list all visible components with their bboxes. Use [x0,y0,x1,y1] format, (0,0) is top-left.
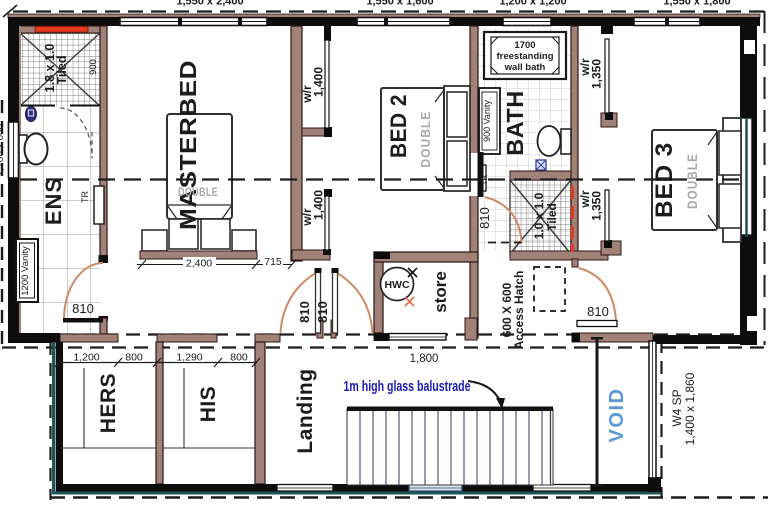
svg-text:DOUBLE: DOUBLE [685,153,700,209]
svg-text:BATH: BATH [502,90,528,156]
svg-text:ENS: ENS [41,177,66,225]
svg-text:900: 900 [88,59,99,75]
svg-text:900 Vanity: 900 Vanity [482,100,492,142]
svg-text:1,550 x 1,800: 1,550 x 1,800 [663,0,730,8]
svg-text:810: 810 [297,301,312,323]
svg-text:810: 810 [587,304,609,319]
svg-text:HWC: HWC [384,279,409,291]
svg-text:1,350: 1,350 [590,191,604,221]
svg-text:1,800: 1,800 [410,353,439,365]
svg-text:BED 2: BED 2 [386,94,411,158]
svg-text:TR: TR [80,191,90,203]
svg-text:W4 SP: W4 SP [670,389,684,426]
svg-text:1,400: 1,400 [312,67,326,97]
svg-text:1,290: 1,290 [176,352,202,364]
svg-text:715: 715 [264,256,282,268]
svg-text:MASTERBED: MASTERBED [175,60,201,230]
svg-text:1,550 x 1,600: 1,550 x 1,600 [366,0,433,8]
svg-text:800: 800 [230,352,248,364]
svg-text:1,200: 1,200 [73,352,99,364]
svg-text:1700: 1700 [514,40,535,51]
svg-text:1,400: 1,400 [312,190,326,220]
svg-text:1,200 x 1,200: 1,200 x 1,200 [499,0,566,8]
svg-text:1.0 x 1.0: 1.0 x 1.0 [532,192,546,239]
svg-text:HERS: HERS [97,373,120,433]
svg-text:wall bath: wall bath [504,62,546,73]
svg-text:1200 Vanity: 1200 Vanity [20,246,31,296]
svg-text:1m high glass balustrade: 1m high glass balustrade [344,379,471,395]
svg-text:HIS: HIS [197,386,220,423]
svg-text:BED 3: BED 3 [651,142,678,218]
svg-text:800: 800 [125,352,143,364]
svg-text:1,550 x 2,400: 1,550 x 2,400 [176,0,243,8]
svg-text:2,400: 2,400 [186,258,212,270]
svg-text:Tiled: Tiled [545,203,559,231]
svg-text:DOUBLE: DOUBLE [418,111,433,168]
svg-text:810: 810 [72,301,94,316]
svg-text:810: 810 [477,207,492,229]
svg-text:freestanding: freestanding [496,51,553,62]
svg-text:TR: TR [480,174,489,185]
svg-text:2,100 x 600: 2,100 x 600 [0,123,6,176]
svg-text:VOID: VOID [606,388,628,443]
svg-text:810: 810 [315,301,330,323]
svg-text:store: store [431,271,450,313]
svg-text:Access Hatch: Access Hatch [512,271,526,350]
svg-text:1,350: 1,350 [590,59,604,89]
svg-text:DOUBLE: DOUBLE [178,185,218,199]
svg-text:Tiled: Tiled [55,56,69,85]
svg-text:1,400 x 1,860: 1,400 x 1,860 [683,372,697,445]
svg-text:Landing: Landing [294,368,317,453]
